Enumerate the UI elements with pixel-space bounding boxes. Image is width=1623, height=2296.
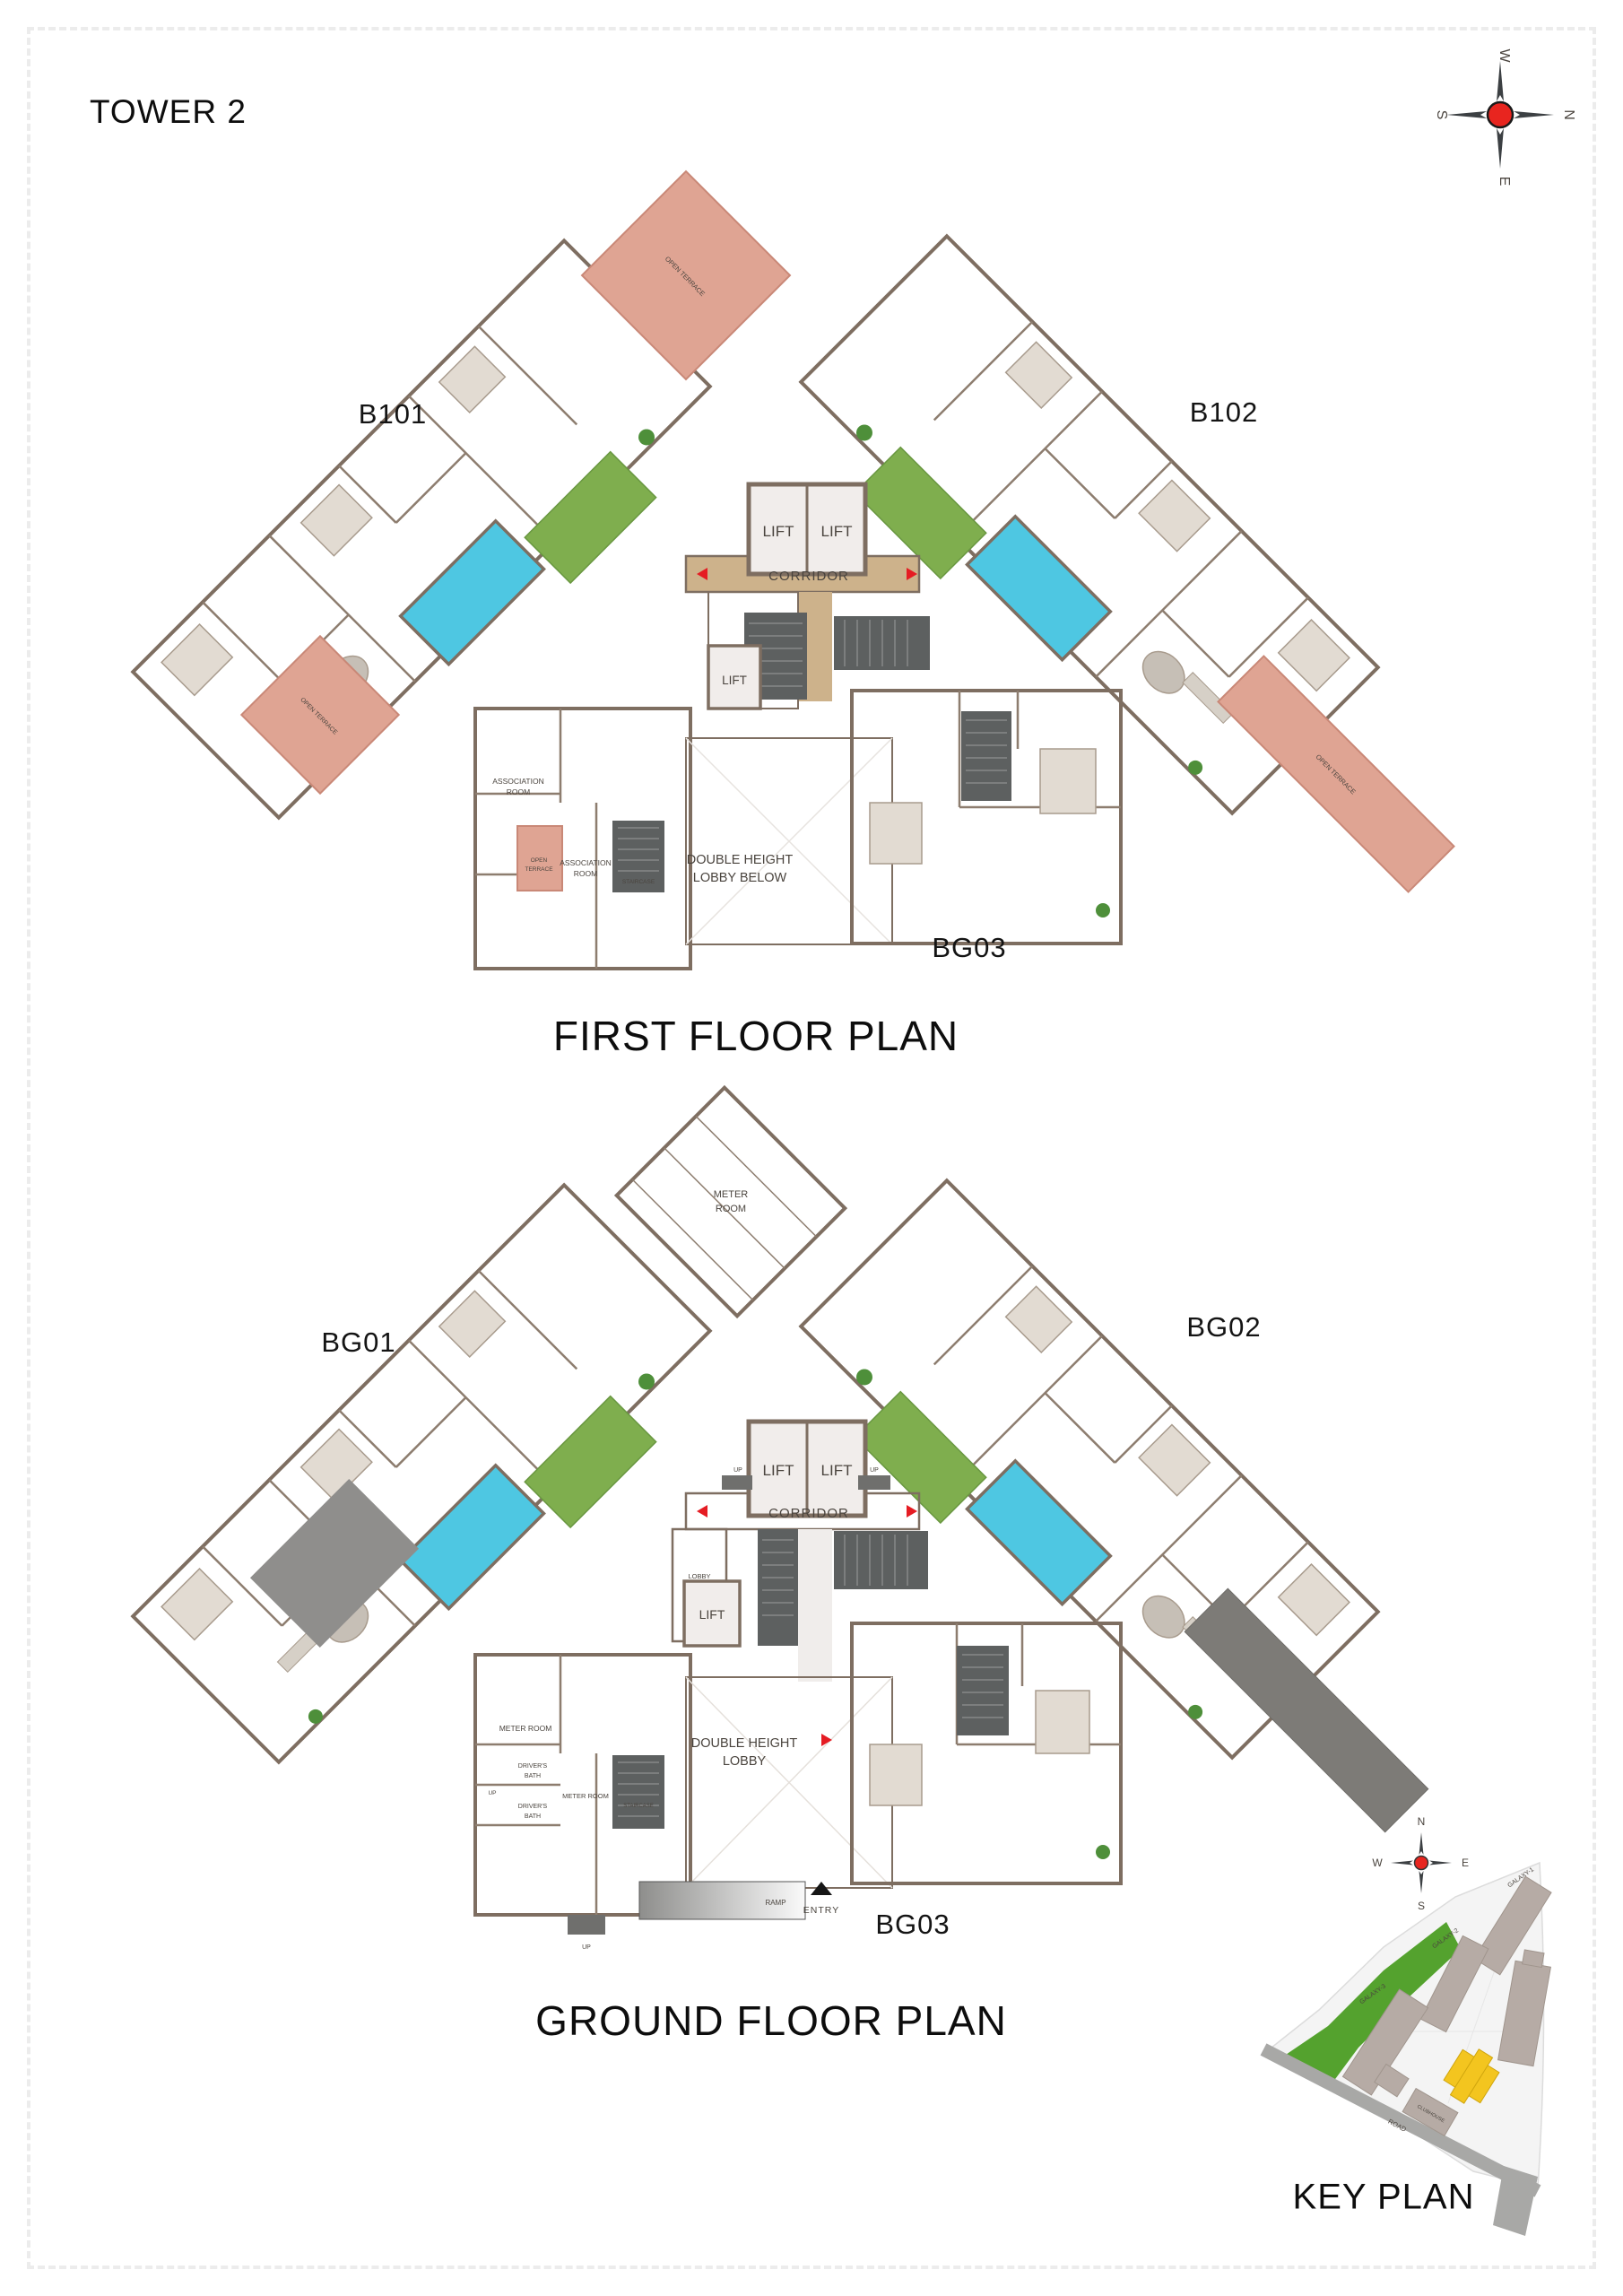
- corridor-arrow-right: [907, 1505, 917, 1518]
- unit-label-b102: B102: [1190, 396, 1258, 429]
- up-label: UP: [488, 1790, 496, 1796]
- unit-label-b101: B101: [359, 398, 427, 430]
- up-label: UP: [733, 1467, 742, 1474]
- staircase-block: [758, 1529, 798, 1646]
- open-terrace-strip: OPEN TERRACE: [1218, 656, 1454, 891]
- staircase-label: STAIRCASE: [623, 1804, 654, 1809]
- compass-w-label: W: [1372, 1857, 1383, 1869]
- association-block: ASSOCIATION ROOM OPEN TERRACE ASSOCIATIO…: [475, 709, 690, 969]
- staircase-block: [834, 1531, 928, 1589]
- meter-room-label: METER ROOM: [562, 1792, 609, 1800]
- ground-floor-title: GROUND FLOOR PLAN: [535, 1996, 1007, 2045]
- up-label: UP: [870, 1467, 879, 1474]
- first-floor-plan: OPEN TERRACE OPEN TERRACE OPEN TERRACE L…: [184, 175, 1439, 991]
- meter-room-label: METER: [714, 1189, 749, 1200]
- staircase-block: [961, 711, 1011, 801]
- corridor-branch: [798, 1529, 832, 1682]
- double-height-lobby: DOUBLE HEIGHT LOBBY BELOW: [686, 738, 892, 944]
- unit-label-bg02: BG02: [1186, 1311, 1261, 1344]
- up-step-block: [568, 1915, 605, 1935]
- association-room-label: ASSOCIATION: [560, 858, 611, 867]
- unit-label-bg03-first: BG03: [932, 932, 1006, 964]
- association-room-label: ROOM: [574, 869, 597, 878]
- sheet: TOWER 2 N E S W: [0, 0, 1623, 2296]
- corridor-label: CORRIDOR: [768, 1506, 849, 1521]
- lobby-label: DOUBLE HEIGHT: [687, 853, 794, 867]
- lobby-label: LOBBY BELOW: [693, 871, 787, 885]
- corridor-label: CORRIDOR: [768, 569, 849, 584]
- compass-n-label: N: [1418, 1815, 1426, 1828]
- drivers-bath-label: DRIVER'S: [518, 1763, 548, 1770]
- open-terrace-label: OPEN: [531, 857, 548, 864]
- compass-s-label: S: [1434, 110, 1449, 120]
- up-step-block: [722, 1475, 752, 1490]
- unit-label-bg03-ground: BG03: [875, 1909, 950, 1941]
- meter-room-top: [617, 1088, 846, 1317]
- lobby-label: LOBBY: [723, 1754, 767, 1769]
- drivers-bath-label: DRIVER'S: [518, 1804, 548, 1810]
- lobby-label: DOUBLE HEIGHT: [691, 1736, 798, 1751]
- staircase-label: STAIRCASE: [622, 879, 655, 885]
- drivers-bath-label: BATH: [525, 1773, 541, 1779]
- compass-e-label: E: [1462, 1857, 1469, 1869]
- entry-label: ENTRY: [803, 1905, 839, 1916]
- compass-w-label: W: [1497, 48, 1512, 63]
- compass-center: [1415, 1857, 1428, 1870]
- lift-label: LIFT: [763, 523, 794, 540]
- unit-bg01-wing: [133, 1185, 738, 1790]
- association-room-label: ASSOCIATION: [492, 777, 543, 786]
- key-plan-title: KEY PLAN: [1293, 2178, 1475, 2218]
- up-label: UP: [582, 1944, 591, 1951]
- lift-label: LIFT: [821, 1462, 853, 1479]
- lobby-label: LOBBY: [688, 1572, 710, 1580]
- open-terrace-label: TERRACE: [525, 866, 553, 873]
- lift-label: LIFT: [722, 674, 747, 687]
- drivers-bath-label: BATH: [525, 1813, 541, 1820]
- compass-e-label: E: [1497, 177, 1512, 187]
- staircase-block: [612, 1755, 664, 1829]
- ramp-label: RAMP: [765, 1899, 785, 1907]
- association-room-label: ROOM: [507, 787, 530, 796]
- unit-label-bg01: BG01: [321, 1326, 395, 1359]
- compass-s-label: S: [1418, 1900, 1425, 1912]
- corridor-arrow-left: [697, 1505, 707, 1518]
- staircase-block: [957, 1646, 1009, 1735]
- open-terrace-top: OPEN TERRACE: [582, 171, 790, 379]
- page-title: TOWER 2: [90, 93, 247, 131]
- pavement-left: [250, 1479, 419, 1648]
- meter-room-label: METER ROOM: [499, 1724, 552, 1733]
- lift-label: LIFT: [821, 523, 853, 540]
- open-terrace-left: OPEN TERRACE: [241, 636, 398, 793]
- lift-label: LIFT: [763, 1462, 794, 1479]
- compass-center: [1488, 102, 1513, 127]
- double-height-lobby: DOUBLE HEIGHT LOBBY: [686, 1677, 892, 1888]
- key-plan: N E S W ROAD: [1242, 1807, 1610, 2229]
- up-step-block: [858, 1475, 890, 1490]
- first-floor-title: FIRST FLOOR PLAN: [553, 1012, 959, 1060]
- meter-room-label: ROOM: [716, 1204, 746, 1214]
- compass-rose: N E S W: [1430, 45, 1574, 188]
- compass-n-label: N: [1561, 109, 1576, 120]
- lift-label: LIFT: [699, 1607, 725, 1622]
